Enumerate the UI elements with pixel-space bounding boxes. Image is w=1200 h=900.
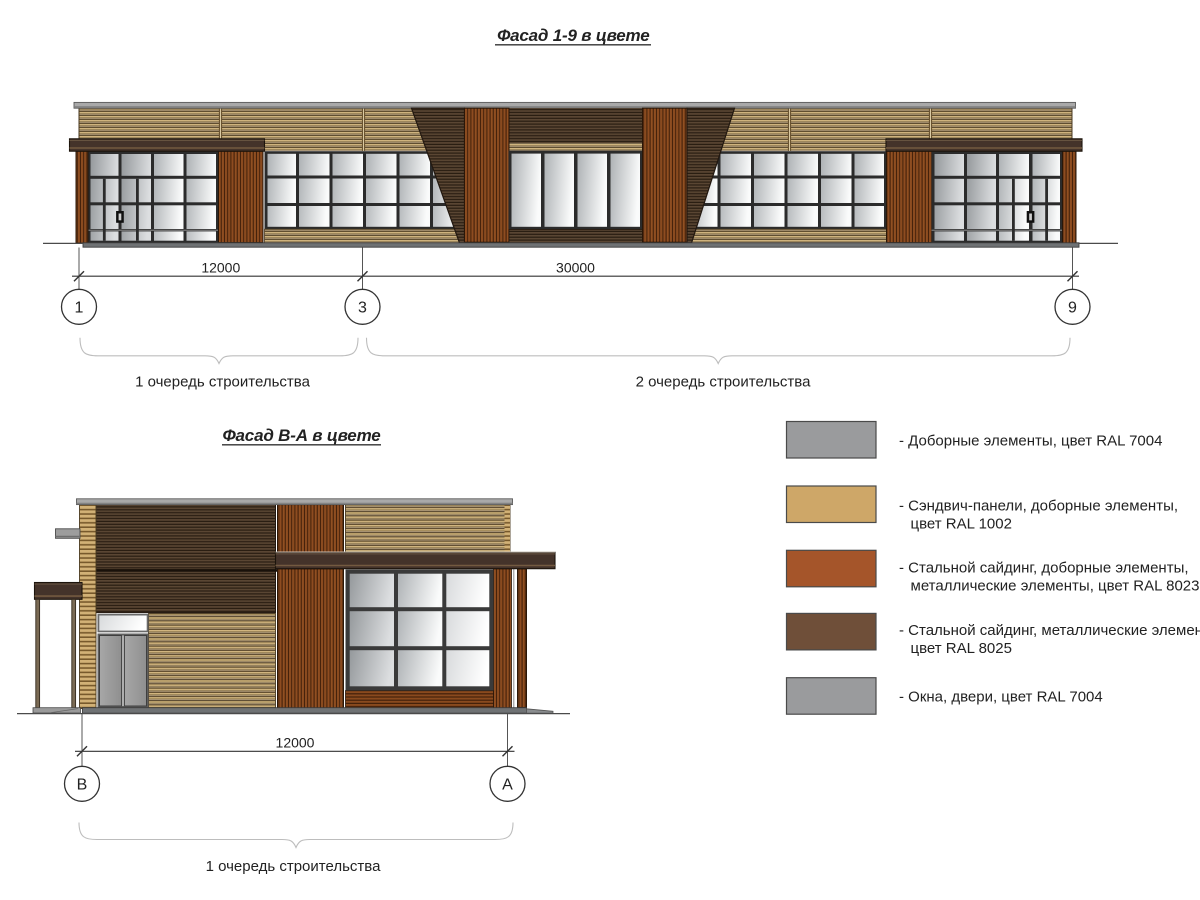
svg-text:3: 3 xyxy=(358,299,367,316)
svg-text:- Стальной сайдинг, металличес: - Стальной сайдинг, металлические элемен… xyxy=(899,622,1200,639)
svg-text:2 очередь строительства: 2 очередь строительства xyxy=(636,374,811,391)
svg-text:12000: 12000 xyxy=(201,260,240,276)
svg-text:- Окна, двери, цвет RAL 7004: - Окна, двери, цвет RAL 7004 xyxy=(899,689,1103,706)
svg-text:1: 1 xyxy=(75,299,84,316)
svg-text:12000: 12000 xyxy=(276,735,315,751)
svg-text:В: В xyxy=(77,776,88,793)
svg-text:30000: 30000 xyxy=(556,260,595,276)
svg-text:цвет RAL 8025: цвет RAL 8025 xyxy=(911,640,1012,657)
svg-text:1 очередь строительства: 1 очередь строительства xyxy=(135,374,310,391)
svg-text:А: А xyxy=(502,776,513,793)
svg-text:1 очередь строительства: 1 очередь строительства xyxy=(206,858,381,875)
svg-text:- Доборные элементы, цвет RAL: - Доборные элементы, цвет RAL 7004 xyxy=(899,433,1162,450)
svg-text:металлические элементы, цвет R: металлические элементы, цвет RAL 8023 xyxy=(911,578,1200,595)
svg-text:9: 9 xyxy=(1068,299,1077,316)
svg-text:Фасад В-А в цвете: Фасад В-А в цвете xyxy=(222,426,380,445)
svg-text:- Стальной сайдинг, доборные э: - Стальной сайдинг, доборные элементы, xyxy=(899,560,1189,577)
svg-text:цвет RAL 1002: цвет RAL 1002 xyxy=(911,516,1012,533)
svg-text:Фасад 1-9 в цвете: Фасад 1-9 в цвете xyxy=(497,26,649,45)
svg-text:- Сэндвич-панели, доборные эле: - Сэндвич-панели, доборные элементы, xyxy=(899,498,1178,515)
